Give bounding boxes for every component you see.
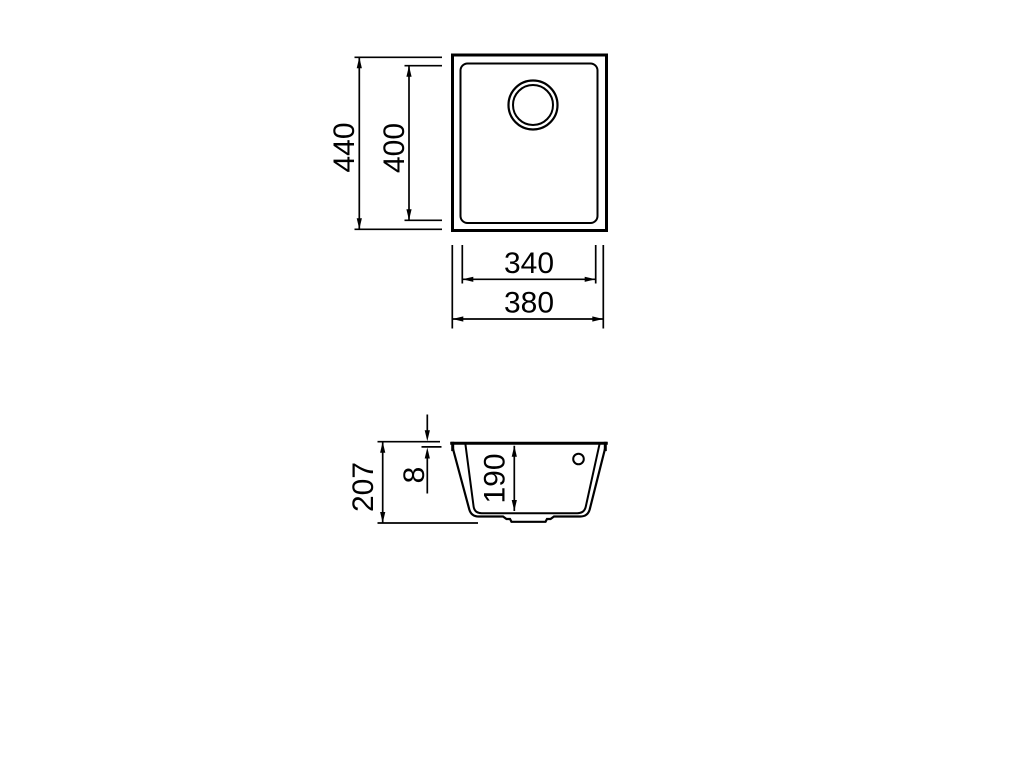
- drain-hole-inner-ring: [513, 85, 553, 125]
- dim-label-bowl-depth: 190: [478, 453, 511, 503]
- sink-inner-bowl-rect: [461, 64, 598, 224]
- arrow-up-icon: [380, 442, 385, 453]
- arrow-right-icon: [592, 316, 603, 321]
- dim-label-rim-thickness: 8: [398, 467, 431, 484]
- sink-technical-drawing: 440 400 340: [0, 0, 1024, 768]
- dim-label-inner-height: 400: [378, 123, 411, 173]
- dim-label-inner-width: 340: [504, 247, 554, 280]
- arrow-up-icon: [357, 57, 362, 68]
- arrow-down-icon: [512, 500, 517, 511]
- arrow-up-icon: [406, 66, 411, 77]
- arrow-down-icon: [406, 209, 411, 220]
- dim-label-total-depth: 207: [347, 462, 380, 512]
- dim-bowl-depth: 190: [478, 446, 517, 511]
- dim-inner-width: 340: [462, 245, 595, 284]
- arrow-down-icon: [425, 430, 430, 441]
- arrow-down-icon: [380, 512, 385, 523]
- arrow-left-icon: [462, 277, 473, 282]
- arrow-left-icon: [452, 316, 463, 321]
- arrow-up-icon: [425, 448, 430, 459]
- arrow-right-icon: [585, 277, 596, 282]
- dim-label-outer-width: 380: [504, 287, 554, 320]
- arrow-down-icon: [357, 218, 362, 229]
- dim-rim-thickness: 8: [398, 415, 442, 494]
- arrow-up-icon: [512, 446, 517, 457]
- overflow-hole: [573, 454, 584, 465]
- top-view: 440 400 340: [328, 55, 607, 329]
- dim-label-outer-height: 440: [328, 122, 361, 172]
- drawing-page: 440 400 340: [0, 0, 1024, 768]
- section-view: 207 8 190: [347, 415, 607, 524]
- drain-hole-outer-ring: [509, 81, 558, 130]
- dim-inner-height: 400: [378, 66, 442, 221]
